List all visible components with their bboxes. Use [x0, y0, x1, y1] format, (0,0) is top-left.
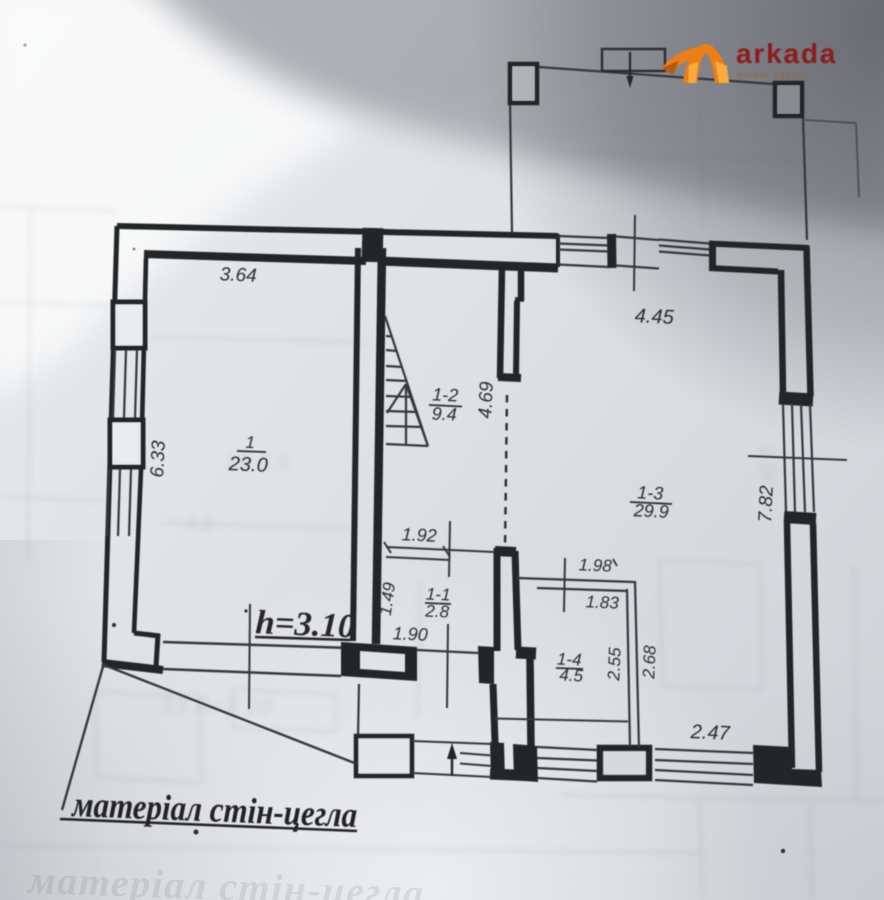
svg-text:4.69: 4.69 [475, 381, 498, 419]
svg-text:4.5: 4.5 [559, 665, 584, 685]
svg-text:3.38: 3.38 [755, 444, 778, 484]
svg-text:arkada: arkada [736, 38, 837, 69]
svg-text:1.90: 1.90 [392, 623, 428, 645]
svg-text:1.92: 1.92 [401, 524, 437, 546]
svg-text:2.47: 2.47 [689, 721, 731, 745]
svg-text:6.33: 6.33 [147, 440, 170, 478]
svg-text:1З А=2.10: 1З А=2.10 [160, 691, 273, 722]
svg-text:7.82: 7.82 [755, 485, 778, 523]
svg-text:4.45: 4.45 [634, 305, 675, 329]
svg-text:1.83: 1.83 [585, 592, 619, 612]
svg-text:3.64: 3.64 [219, 264, 257, 287]
svg-text:estate agency: estate agency [737, 70, 810, 81]
svg-text:1.98: 1.98 [578, 555, 612, 575]
svg-text:9.4: 9.4 [431, 403, 457, 424]
svg-text:29.9: 29.9 [632, 500, 669, 522]
svg-text:1: 1 [245, 433, 255, 452]
svg-text:4.8: 4.8 [185, 513, 214, 536]
svg-text:2.55: 2.55 [604, 646, 624, 681]
svg-text:2.68: 2.68 [639, 644, 659, 679]
svg-text:1-2: 1-2 [432, 384, 459, 405]
svg-text:23.0: 23.0 [227, 453, 268, 477]
svg-text:2.8: 2.8 [424, 601, 450, 621]
